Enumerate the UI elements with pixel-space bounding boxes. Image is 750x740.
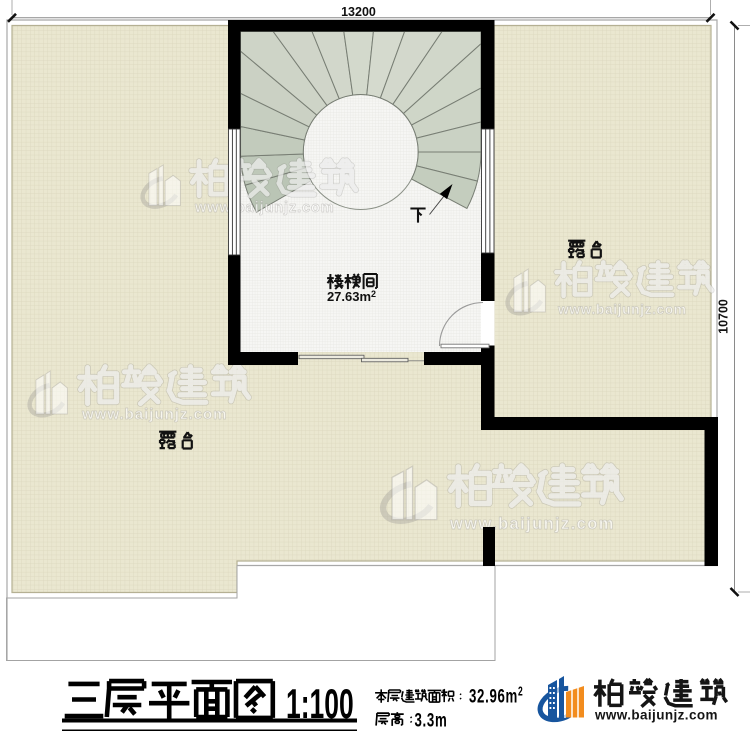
svg-text:1:100: 1:100 bbox=[286, 681, 354, 728]
svg-text:www.baijunjz.com: www.baijunjz.com bbox=[594, 708, 718, 723]
svg-text:32.96m2: 32.96m2 bbox=[469, 685, 523, 707]
svg-text:27.63m2: 27.63m2 bbox=[327, 289, 376, 304]
svg-text:www.baijunjz.com: www.baijunjz.com bbox=[557, 302, 687, 317]
svg-text:10700: 10700 bbox=[717, 299, 731, 334]
svg-text:13200: 13200 bbox=[341, 5, 376, 19]
svg-text:www.baijunjz.com: www.baijunjz.com bbox=[194, 200, 335, 216]
svg-text:3.3m: 3.3m bbox=[415, 709, 448, 731]
svg-text:www.baijunjz.com: www.baijunjz.com bbox=[81, 406, 227, 423]
svg-text:www.baijunjz.com: www.baijunjz.com bbox=[449, 515, 615, 533]
